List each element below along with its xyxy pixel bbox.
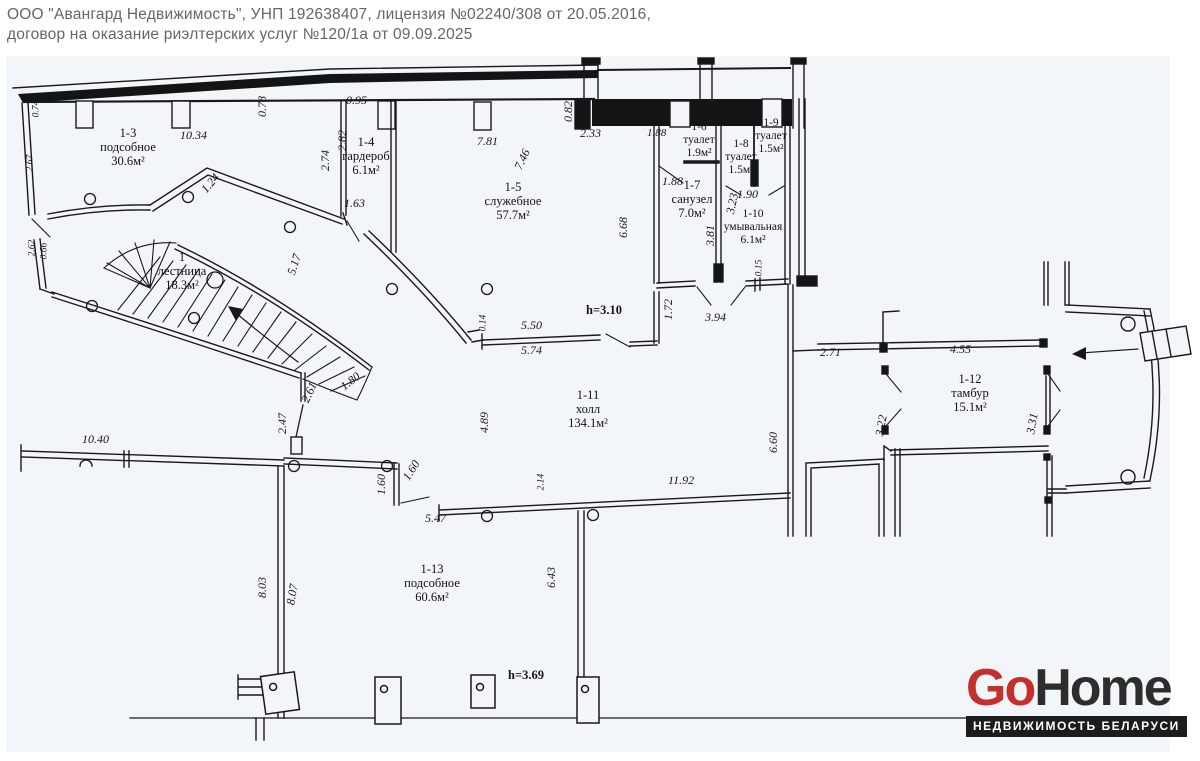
dim-2-33: 2.33: [580, 126, 601, 141]
dim-2-82: 2.82: [335, 130, 350, 151]
room-label-1-12: 1-12тамбур15.1м²: [951, 372, 988, 414]
dim-1-72: 1.72: [661, 299, 676, 320]
dim-2-71: 2.71: [820, 345, 841, 360]
dim-6-60: 6.60: [766, 432, 781, 453]
east-corridor-wall: [788, 99, 817, 536]
dim-0-78: 0.78: [255, 96, 270, 117]
dim-10-34: 10.34: [180, 128, 207, 143]
west-wall: [22, 103, 54, 294]
room-label-1-6: 1-6туалет1.9м²: [683, 121, 715, 160]
gohome-logo-text: GoHome: [966, 662, 1187, 714]
dim-1-63: 1.63: [344, 196, 365, 211]
logo-home: Home: [1034, 659, 1170, 717]
dim-2-74: 2.74: [318, 150, 333, 171]
room-label-1-8: 1-8туалет1.5м²: [725, 138, 757, 177]
dim-1-88-top: 1.88: [647, 127, 666, 139]
dim-0-74: 0.74: [31, 101, 41, 118]
dim-height-3-10: h=3.10: [586, 303, 622, 318]
dim-5-50: 5.50: [521, 318, 542, 333]
dim-7-81: 7.81: [477, 134, 498, 149]
dim-0-82: 0.82: [561, 101, 576, 122]
entrance-bay: [1044, 262, 1191, 493]
dim-10-40: 10.40: [82, 432, 109, 447]
room-label-stairs: 1лестница18.3м²: [158, 250, 207, 292]
gohome-logo-tagline: НЕДВИЖИМОСТЬ БЕЛАРУСИ: [966, 716, 1187, 737]
dim-2-14: 2.14: [536, 474, 546, 491]
gohome-logo: GoHome НЕДВИЖИМОСТЬ БЕЛАРУСИ: [966, 662, 1187, 737]
room-label-1-13: 1-13подсобное60.6м²: [404, 562, 460, 604]
logo-go: Go: [966, 659, 1034, 717]
floor-plan-drawing: [0, 0, 1200, 761]
room-label-1-11: 1-11холл134.1м²: [568, 388, 608, 430]
room-label-1-5: 1-5служебное57.7м²: [485, 180, 542, 222]
room-1-3-parapet: [48, 168, 347, 225]
dim-0-66: 0.66: [39, 243, 49, 260]
room-label-1-9: 1-9туалет1.5м²: [755, 117, 787, 156]
dim-3-81: 3.81: [703, 225, 718, 246]
dim-2-47: 2.47: [275, 413, 290, 434]
dim-1-60-a: 1.60: [374, 474, 389, 495]
shaft-walls: [806, 449, 1052, 536]
dim-8-03: 8.03: [255, 577, 270, 598]
floorplan-page: ООО "Авангард Недвижимость", УНП 1926384…: [0, 0, 1200, 761]
room-label-1-3: 1-3подсобное30.6м²: [100, 126, 156, 168]
dim-0-15: 0.15: [754, 260, 764, 277]
tambour-walls: [793, 311, 1060, 460]
dim-4-55: 4.55: [950, 342, 971, 357]
dim-0-95: 0.95: [346, 93, 367, 108]
dim-5-47: 5.47: [425, 511, 446, 526]
dim-3-94: 3.94: [705, 310, 726, 325]
dim-1-88: 1.88: [662, 174, 683, 189]
dim-height-3-69: h=3.69: [508, 668, 544, 683]
dim-0-14: 0.14: [478, 315, 488, 332]
dim-4-89: 4.89: [477, 412, 492, 433]
dim-6-43: 6.43: [544, 567, 559, 588]
dim-11-92: 11.92: [668, 473, 694, 488]
dim-6-68: 6.68: [616, 217, 631, 238]
room-1-5-walls: [364, 231, 659, 349]
bottom-pillars: [261, 672, 599, 724]
hall-south-wall: [439, 493, 790, 521]
dim-2-67: 2.67: [25, 155, 35, 172]
dim-5-74: 5.74: [521, 343, 542, 358]
dim-2-62: 2.62: [27, 240, 37, 257]
